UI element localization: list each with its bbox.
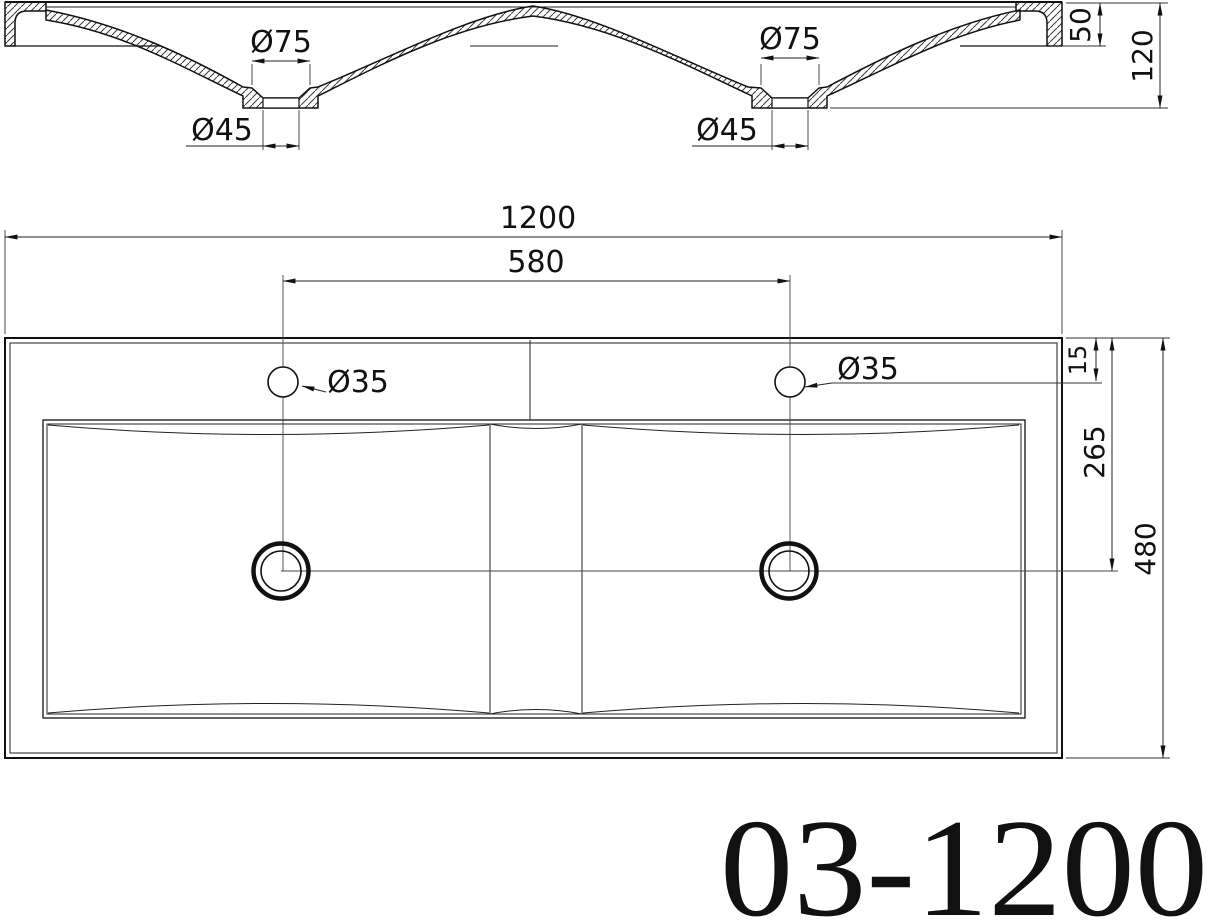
bowl-outline: [43, 420, 1025, 718]
dim-label-drain-countersink-left: Ø75: [250, 25, 312, 60]
dim-drain-hole-left: Ø45: [186, 110, 299, 150]
dim-label-drain-countersink-right: Ø75: [759, 22, 821, 57]
dim-faucet-spacing: 580: [283, 245, 790, 281]
dim-label-back-edge-to-faucet: 15: [1064, 345, 1092, 376]
basin-inner-edge: [10, 343, 1057, 753]
dim-label-overall-width: 1200: [500, 201, 576, 236]
section-left-wall: [5, 2, 46, 46]
dim-overall-depth: 480: [1066, 338, 1170, 758]
dim-label-drain-hole-left: Ø45: [191, 113, 253, 148]
section-right-wall: [1016, 2, 1062, 46]
dim-drain-countersink-left: Ø75: [250, 25, 312, 85]
dim-label-faucet-hole-left: Ø35: [327, 365, 389, 400]
left-drain-hole: [263, 98, 299, 108]
bowl-right-top-slope: [583, 425, 1019, 435]
double-sink-drawing: Ø75 Ø75 Ø45 Ø45: [0, 0, 1214, 923]
plan-view: 1200 580 Ø35: [5, 201, 1170, 758]
dim-label-back-edge-to-drain: 265: [1078, 425, 1111, 478]
dim-label-overall-depth: 480: [1129, 522, 1162, 575]
bowl-left-top-slope: [48, 425, 489, 435]
dim-drain-hole-right: Ø45: [692, 110, 808, 150]
technical-drawing-sheet: Ø75 Ø75 Ø45 Ø45: [0, 0, 1214, 923]
basin-outline: [5, 338, 1062, 758]
bowl-right-bottom-slope: [583, 704, 1019, 714]
divider-bottom-saddle: [490, 710, 582, 715]
bowl-inner-edge: [47, 424, 1021, 714]
dim-label-front-edge-height: 50: [1064, 7, 1097, 43]
dim-label-drain-hole-right: Ø45: [696, 113, 758, 148]
drawing-number: 03-1200: [720, 791, 1208, 923]
dim-faucet-hole-left: Ø35: [302, 365, 389, 400]
dim-label-faucet-hole-right: Ø35: [837, 352, 899, 387]
dim-back-edge-to-faucet: 15: [1064, 338, 1170, 381]
section-basin-shell: [46, 6, 1020, 108]
right-drain-hole: [772, 98, 808, 108]
dim-label-faucet-spacing: 580: [507, 245, 564, 280]
section-view: Ø75 Ø75 Ø45 Ø45: [5, 2, 1168, 150]
bowl-left-bottom-slope: [48, 704, 489, 714]
divider-top-saddle: [490, 424, 582, 429]
left-faucet-hole: [268, 367, 298, 397]
right-faucet-hole: [775, 367, 805, 397]
dim-drain-countersink-right: Ø75: [759, 22, 821, 85]
dim-label-overall-height: 120: [1126, 29, 1159, 82]
